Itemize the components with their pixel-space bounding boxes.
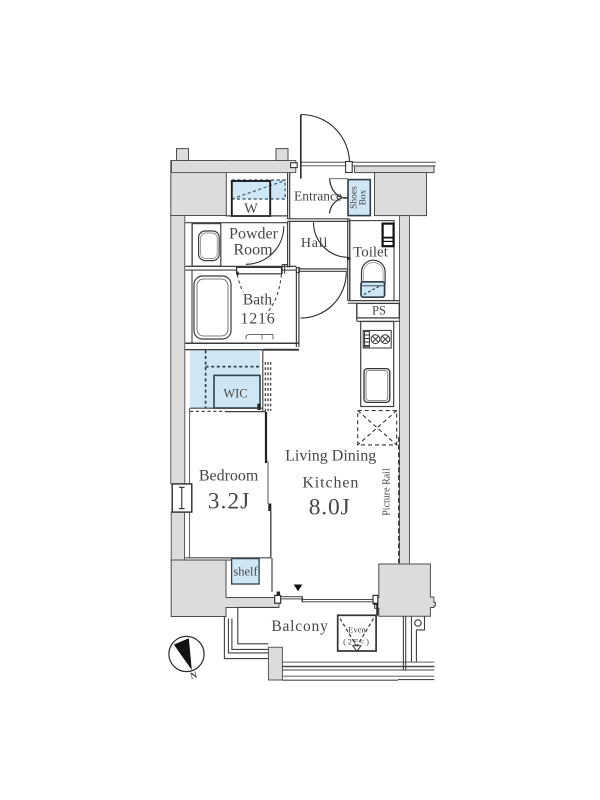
svg-text:Box: Box	[359, 189, 369, 205]
svg-text:W: W	[244, 201, 258, 217]
svg-text:Bedroom: Bedroom	[199, 467, 259, 484]
svg-text:Hall: Hall	[301, 236, 328, 251]
svg-text:Bath: Bath	[243, 292, 273, 309]
svg-text:Balcony: Balcony	[271, 618, 328, 635]
svg-text:WIC: WIC	[223, 387, 247, 401]
svg-text:Kitchen: Kitchen	[302, 474, 359, 491]
svg-text:Picture Rail: Picture Rail	[382, 468, 393, 516]
svg-text:Even: Even	[348, 625, 366, 635]
svg-text:1216: 1216	[240, 311, 275, 328]
svg-text:Powder: Powder	[229, 226, 279, 243]
svg-text:3.2J: 3.2J	[208, 488, 251, 514]
svg-text:Room: Room	[233, 241, 273, 258]
svg-text:(2F<): (2F<)	[343, 637, 370, 647]
svg-text:PS: PS	[372, 304, 386, 318]
svg-text:Entrance: Entrance	[294, 189, 342, 204]
svg-text:shelf: shelf	[233, 565, 258, 579]
svg-text:Living Dining: Living Dining	[285, 448, 376, 465]
svg-text:8.0J: 8.0J	[309, 495, 351, 521]
